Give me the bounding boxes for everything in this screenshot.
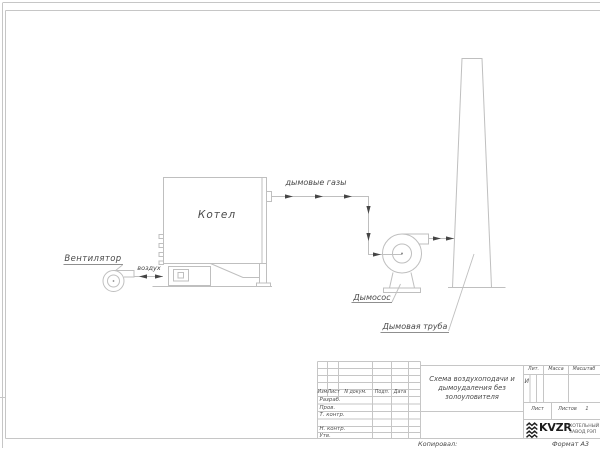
titleblock-col-sign: Подп. [373, 391, 392, 396]
chimney-leader-line [449, 254, 475, 331]
flue-gas-label: дымовые газы [282, 179, 350, 187]
titleblock-col-doc-no: N докум. [339, 391, 373, 396]
chimney-outline [448, 59, 506, 288]
lit-value: И [524, 379, 531, 385]
document-title-line3: золоуловителя [445, 394, 499, 401]
exhauster-symbol [383, 234, 429, 293]
sheet-label: Лист [524, 407, 552, 412]
air-flow-label: воздух [134, 265, 164, 272]
titleblock-row-tech-control: Т. контр. [320, 413, 345, 418]
drawing-sheet: Вентилятор воздух Котел дымовые газы Дым… [0, 0, 600, 450]
flue-gas-line [272, 197, 403, 255]
company-logo-text: KVZR [539, 422, 572, 433]
boiler-outline [153, 178, 273, 287]
document-title: Схема воздухоподачи и дымоудаления без з… [421, 366, 524, 412]
flue-gas-arrows [285, 194, 381, 256]
copied-label: Копировал: [418, 441, 457, 448]
fan-label: Вентилятор [63, 255, 123, 264]
boiler-label: Котел [191, 210, 243, 221]
titleblock-row-approved: Утв. [320, 434, 331, 439]
fan-symbol [103, 271, 134, 292]
mass-header: Масса [544, 368, 569, 373]
company-name: КОТЕЛЬНЫЙ ЗАВОД РЭП [569, 424, 599, 436]
chimney-label: Дымовая труба [380, 323, 450, 331]
exhauster-label: Дымосос [351, 294, 393, 302]
format-label: Формат А3 [552, 441, 589, 448]
sheets-value: 1 [581, 407, 593, 412]
titleblock-row-checked: Пров. [320, 406, 336, 411]
document-title-line1: Схема воздухоподачи и [429, 376, 515, 383]
titleblock-row-norm-control: Н. контр. [320, 427, 346, 432]
titleblock-col-rev: Изм. [318, 391, 328, 396]
sheets-label: Листов [552, 407, 584, 412]
titleblock-col-sheet: Лист [328, 391, 339, 396]
titleblock-col-date: Дата [392, 391, 409, 396]
document-title-line2: дымоудаления без [438, 385, 506, 392]
scale-header: Масштаб [569, 368, 600, 373]
kvzr-logo-icon [527, 423, 538, 437]
titleblock-row-developed: Разраб. [320, 398, 341, 403]
company-name-line2: ЗАВОД РЭП [569, 430, 599, 436]
lit-header: Лит. [524, 368, 544, 373]
